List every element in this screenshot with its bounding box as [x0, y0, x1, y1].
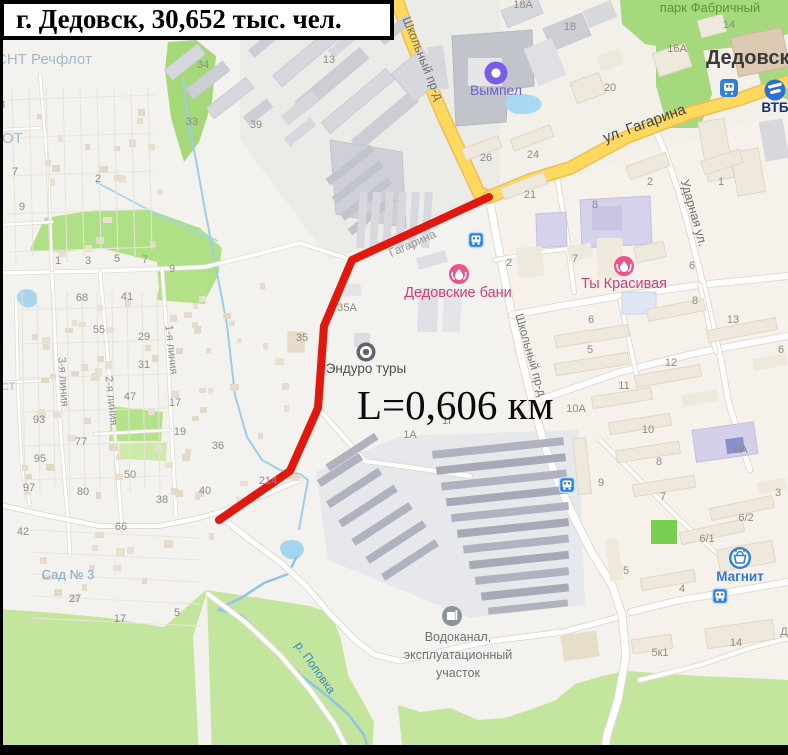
svg-text:95: 95 [34, 453, 46, 465]
svg-text:СТ: СТ [1, 381, 16, 393]
svg-text:16А: 16А [667, 43, 687, 55]
svg-text:7: 7 [660, 491, 666, 503]
svg-text:55: 55 [93, 324, 105, 336]
svg-text:33: 33 [186, 116, 198, 128]
svg-text:35А: 35А [337, 302, 357, 314]
svg-text:38: 38 [156, 494, 168, 506]
svg-text:6/2: 6/2 [738, 512, 753, 524]
svg-text:68: 68 [76, 292, 88, 304]
svg-text:участок: участок [436, 666, 481, 680]
svg-text:10: 10 [642, 424, 654, 436]
svg-text:3: 3 [775, 487, 781, 499]
svg-text:5: 5 [587, 344, 593, 356]
svg-text:5: 5 [174, 607, 180, 619]
svg-text:г. Дедовск, 30,652 тыс. чел.: г. Дедовск, 30,652 тыс. чел. [16, 4, 342, 34]
svg-text:17: 17 [114, 613, 126, 625]
svg-text:2: 2 [647, 176, 653, 188]
svg-text:10А: 10А [566, 403, 586, 415]
svg-text:1А: 1А [403, 429, 417, 441]
svg-text:6: 6 [588, 314, 594, 326]
svg-text:2: 2 [95, 173, 101, 185]
svg-text:парк Фабричный: парк Фабричный [660, 0, 760, 15]
svg-text:80: 80 [77, 486, 89, 498]
svg-text:Эндуро туры: Эндуро туры [326, 361, 407, 376]
svg-text:Дедовск: Дедовск [706, 47, 788, 69]
svg-text:8: 8 [656, 456, 662, 468]
svg-text:18А: 18А [513, 0, 533, 11]
svg-text:66: 66 [115, 521, 127, 533]
svg-text:7: 7 [572, 253, 578, 265]
svg-text:11: 11 [618, 380, 629, 392]
svg-text:эксплуатационный: эксплуатационный [404, 648, 513, 662]
svg-text:Сад № 3: Сад № 3 [42, 567, 95, 582]
svg-text:7: 7 [12, 166, 18, 178]
svg-text:9: 9 [598, 477, 604, 489]
svg-text:19: 19 [174, 426, 186, 438]
svg-text:13: 13 [323, 54, 335, 66]
svg-text:5: 5 [114, 253, 120, 265]
svg-text:77: 77 [75, 436, 87, 448]
svg-text:2: 2 [506, 257, 512, 269]
svg-text:42: 42 [17, 526, 29, 538]
svg-text:Дедовские бани: Дедовские бани [404, 285, 512, 301]
svg-text:18: 18 [564, 21, 576, 33]
svg-text:214: 214 [259, 475, 277, 487]
svg-text:27: 27 [69, 593, 81, 605]
svg-text:39: 39 [250, 119, 262, 131]
svg-text:ОТ: ОТ [2, 130, 23, 147]
svg-text:50: 50 [124, 469, 136, 481]
svg-text:93: 93 [33, 414, 45, 426]
svg-text:1: 1 [55, 255, 61, 267]
svg-text:20: 20 [604, 82, 616, 94]
svg-text:6: 6 [689, 260, 695, 272]
svg-text:47: 47 [124, 391, 136, 403]
svg-text:Магнит: Магнит [716, 569, 764, 584]
svg-text:ВТБ: ВТБ [761, 100, 788, 115]
svg-text:4: 4 [679, 583, 685, 595]
svg-text:СНТ Речфлот: СНТ Речфлот [0, 51, 92, 68]
svg-text:29: 29 [138, 331, 150, 343]
svg-text:41: 41 [121, 291, 133, 303]
svg-text:1: 1 [718, 176, 724, 188]
svg-text:35: 35 [296, 332, 308, 344]
svg-text:6: 6 [778, 344, 784, 356]
svg-text:5к1: 5к1 [651, 647, 668, 659]
svg-text:21: 21 [524, 189, 536, 201]
svg-text:13: 13 [727, 314, 739, 326]
svg-text:L=0,606 км: L=0,606 км [357, 382, 554, 428]
svg-text:5: 5 [623, 565, 629, 577]
svg-text:6/1: 6/1 [699, 533, 714, 545]
svg-text:14: 14 [723, 19, 735, 31]
svg-text:26: 26 [480, 152, 492, 164]
svg-text:12: 12 [665, 357, 677, 369]
svg-text:36: 36 [212, 440, 224, 452]
svg-text:31: 31 [138, 359, 150, 371]
svg-text:9: 9 [19, 201, 25, 213]
svg-text:Д: Д [780, 626, 788, 638]
svg-text:34: 34 [197, 59, 209, 71]
svg-text:8: 8 [592, 199, 598, 211]
svg-text:Водоканал,: Водоканал, [425, 630, 492, 644]
svg-text:6А: 6А [734, 444, 748, 456]
svg-text:9: 9 [169, 263, 175, 275]
svg-text:40: 40 [199, 485, 211, 497]
svg-text:Вымпел: Вымпел [470, 82, 522, 98]
svg-text:97: 97 [23, 482, 35, 494]
svg-text:24: 24 [527, 149, 539, 161]
svg-text:3: 3 [85, 255, 91, 267]
svg-text:17: 17 [169, 397, 181, 409]
svg-text:7: 7 [142, 254, 148, 266]
svg-text:14: 14 [730, 637, 742, 649]
svg-text:8: 8 [692, 295, 698, 307]
svg-text:Ты Красивая: Ты Красивая [581, 276, 667, 292]
